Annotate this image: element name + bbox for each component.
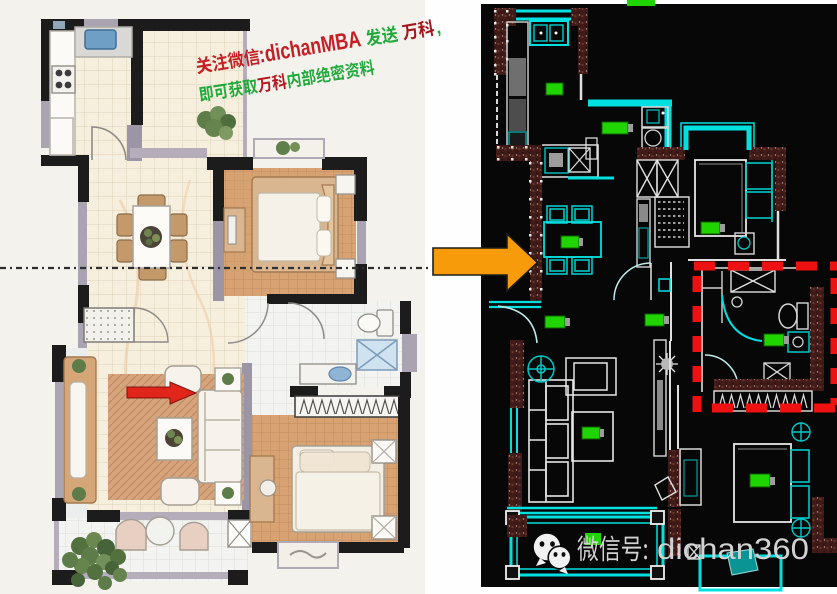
svg-text:dichan360: dichan360	[657, 533, 809, 566]
